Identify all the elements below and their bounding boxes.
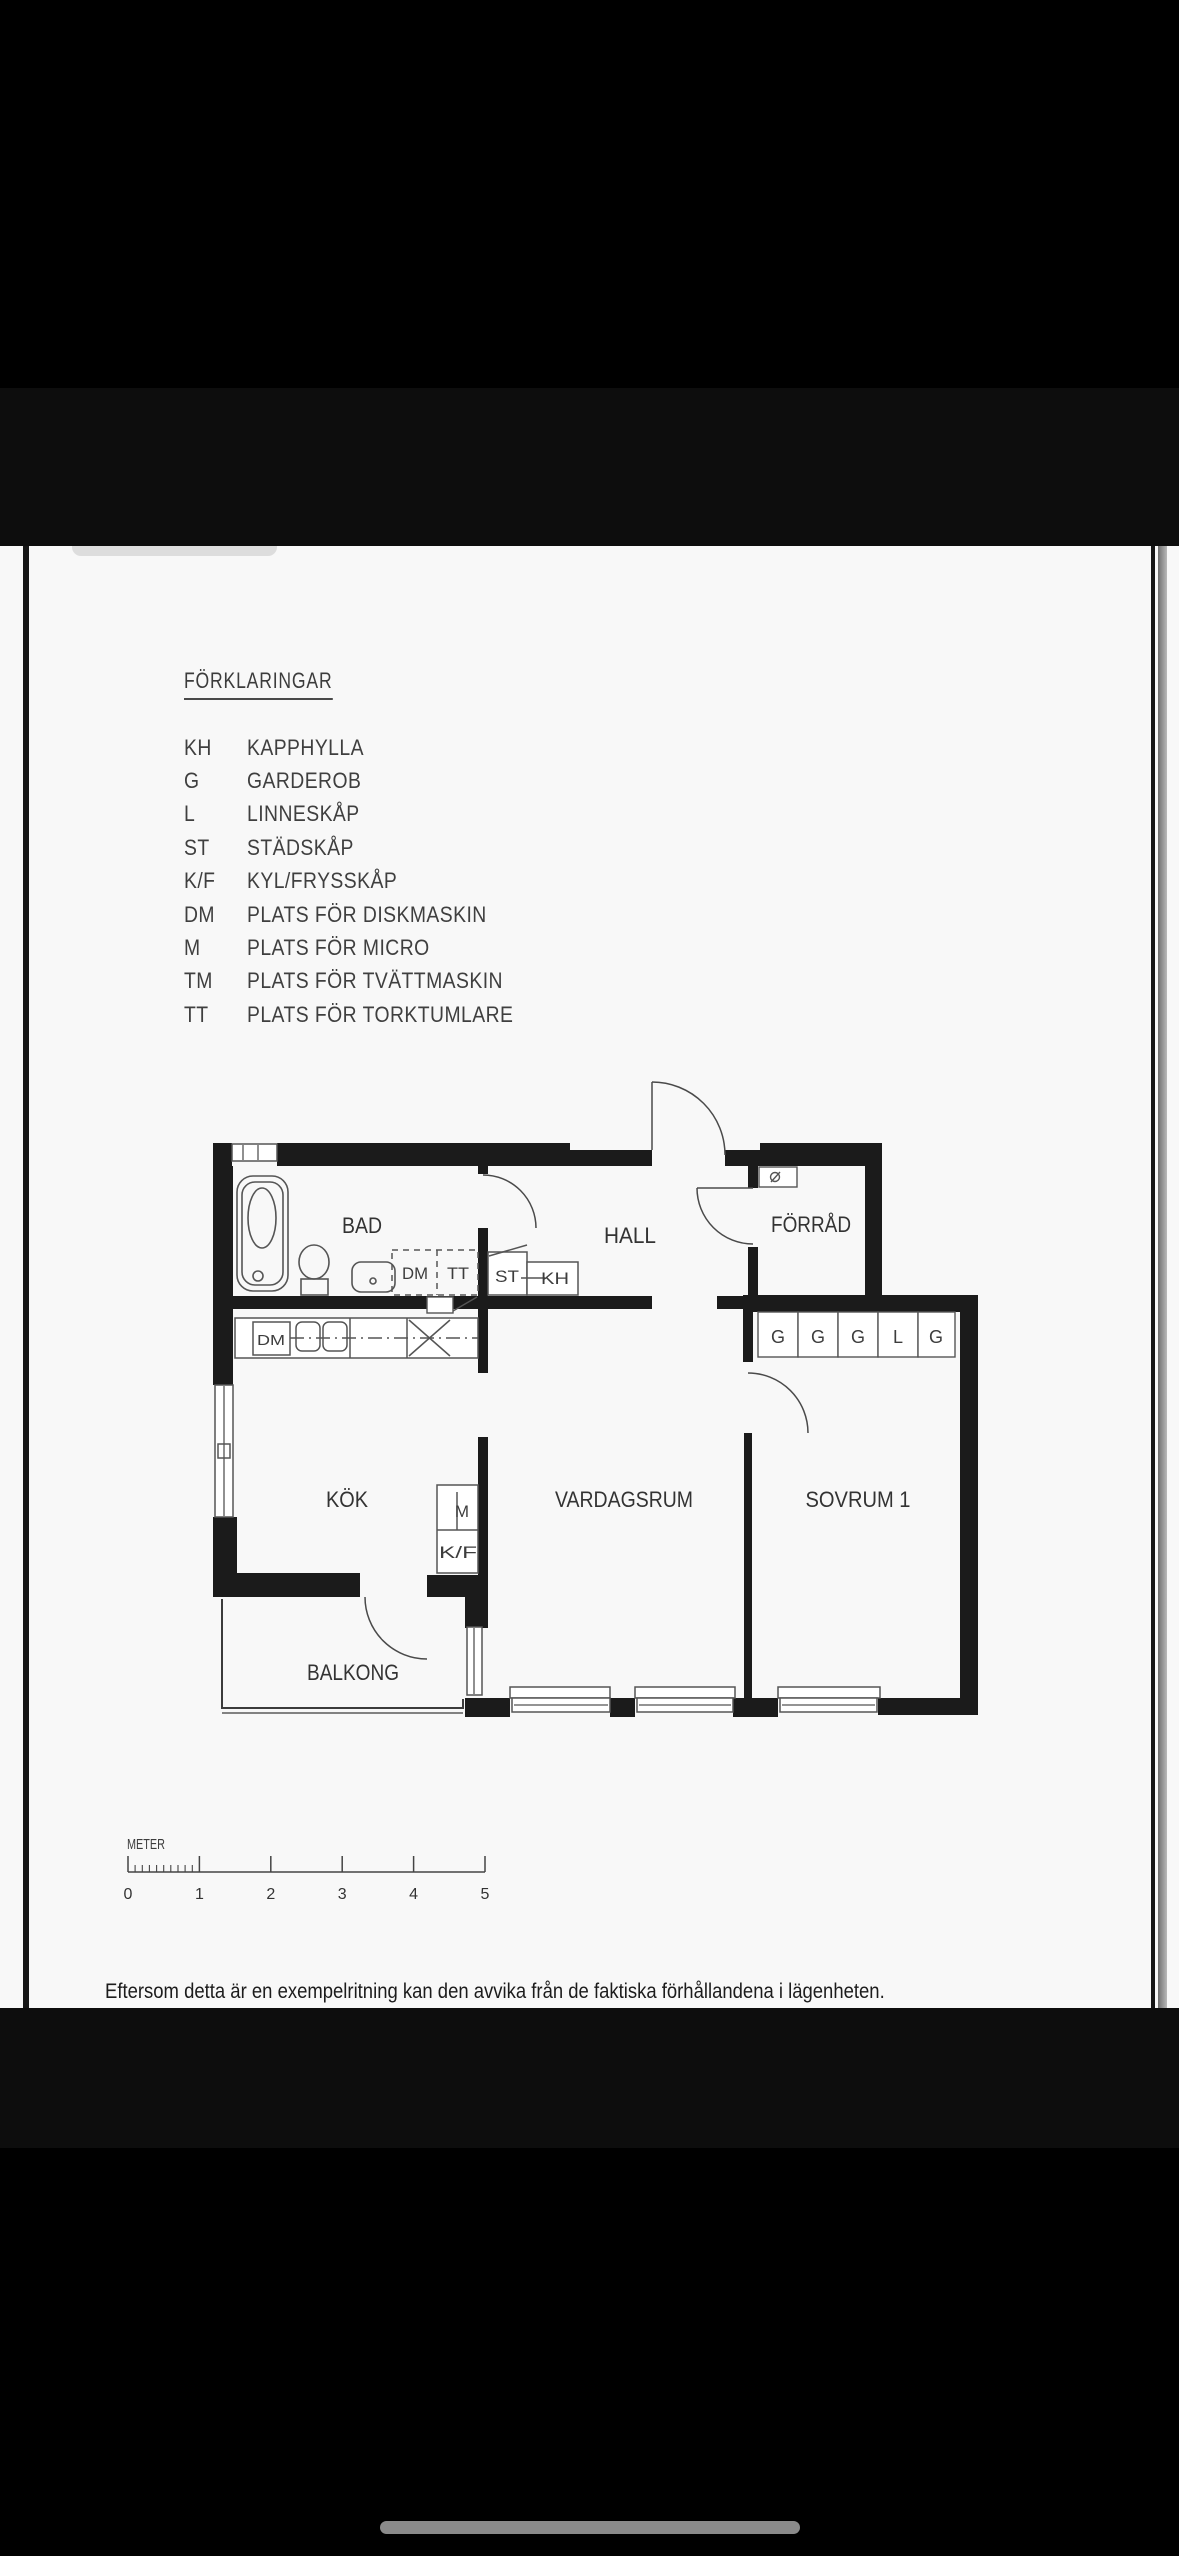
closet-label: G [771, 1327, 785, 1347]
bathtub [237, 1176, 288, 1291]
kitchen-sink-basin [296, 1322, 320, 1351]
phone-screen: FÖRKLARINGAR KH KAPPHYLLA G GARDEROB L L… [0, 0, 1179, 2556]
room-label-kok: KÖK [326, 1487, 368, 1512]
scale-numbers: 0 1 2 3 4 5 [124, 1886, 490, 1903]
label-tt-reservation: TT [447, 1264, 469, 1283]
label-kyl-frys: K/F [439, 1543, 477, 1562]
door-swings [365, 1082, 808, 1659]
walls [213, 1143, 978, 1717]
label-st-cabinet: ST [495, 1267, 519, 1286]
balcony-outline [222, 1599, 463, 1713]
document-page: FÖRKLARINGAR KH KAPPHYLLA G GARDEROB L L… [0, 546, 1179, 2008]
electrical-box [759, 1167, 797, 1187]
top-dark-band [0, 388, 1179, 546]
toilet [299, 1245, 329, 1295]
label-dm-reservation: DM [402, 1264, 428, 1283]
room-label-hall: HALL [604, 1223, 656, 1248]
room-label-vardagsrum: VARDAGSRUM [555, 1487, 693, 1512]
room-label-bad: BAD [342, 1213, 382, 1238]
label-micro: M [455, 1502, 469, 1521]
home-indicator[interactable] [380, 2521, 800, 2534]
closet-label: G [929, 1327, 943, 1347]
scale-number: 4 [409, 1886, 418, 1903]
scale-number: 5 [481, 1886, 490, 1903]
scale-number: 1 [195, 1886, 204, 1903]
scale-number: 2 [266, 1886, 275, 1903]
scale-number: 0 [124, 1886, 133, 1903]
scale-unit-label: METER [127, 1836, 165, 1853]
scale-number: 3 [338, 1886, 347, 1903]
room-labels: BAD HALL FÖRRÅD KÖK VARDAGSRUM SOVRUM 1 … [307, 1212, 911, 1685]
kitchen-sink-basin [323, 1322, 347, 1351]
room-label-balkong: BALKONG [307, 1660, 399, 1685]
sink [352, 1262, 395, 1292]
label-kh-shelf: KH [541, 1269, 569, 1288]
scale-ruler [128, 1856, 485, 1872]
closet-label: L [893, 1327, 903, 1347]
room-label-sovrum: SOVRUM 1 [806, 1487, 911, 1512]
disclaimer-text: Eftersom detta är en exempelritning kan … [105, 1980, 950, 2004]
closet-label: G [851, 1327, 865, 1347]
floor-plan-drawing: G G G L G BAD HALL FÖRRÅD KÖK VARDAGSRUM… [0, 546, 1179, 2008]
scale-bar: METER [124, 1836, 490, 1903]
room-label-forrad: FÖRRÅD [771, 1212, 851, 1237]
closet-label: G [811, 1327, 825, 1347]
bottom-dark-band [0, 2008, 1179, 2148]
label-counter-dm: DM [257, 1332, 285, 1349]
